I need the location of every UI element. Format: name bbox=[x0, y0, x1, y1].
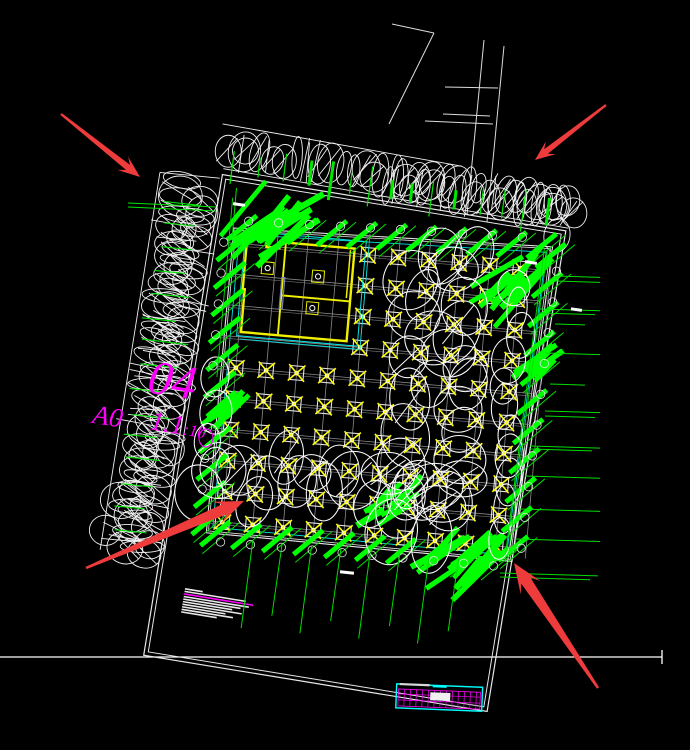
svg-text:A0: A0 bbox=[89, 399, 126, 434]
svg-text:04: 04 bbox=[144, 351, 200, 411]
